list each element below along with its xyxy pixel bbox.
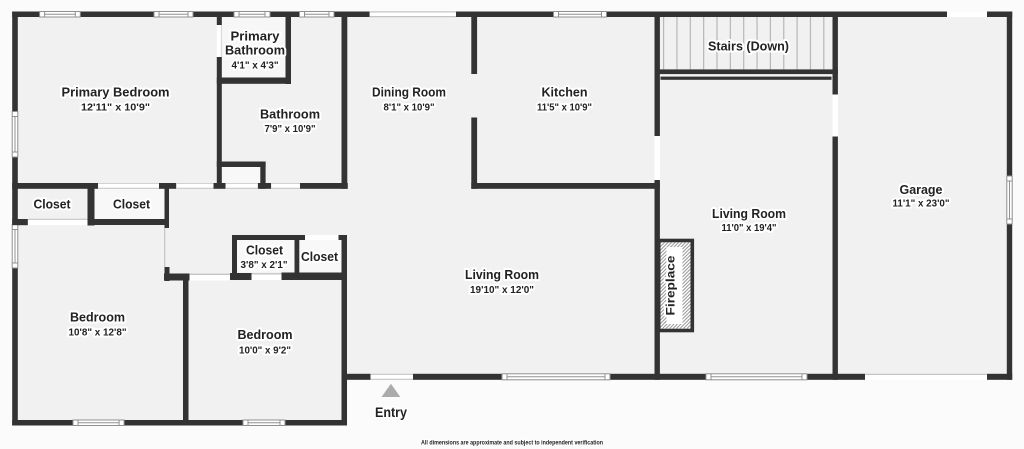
- svg-text:Garage: Garage: [900, 182, 943, 197]
- svg-text:Bathroom: Bathroom: [225, 43, 285, 58]
- svg-text:Closet: Closet: [301, 249, 339, 264]
- svg-text:Bathroom: Bathroom: [260, 106, 320, 121]
- svg-text:Kitchen: Kitchen: [542, 85, 588, 100]
- svg-text:Closet: Closet: [246, 242, 284, 257]
- svg-text:8'1" x 10'9": 8'1" x 10'9": [384, 103, 435, 114]
- svg-text:4'1" x 4'3": 4'1" x 4'3": [232, 61, 279, 72]
- svg-text:10'0" x 9'2": 10'0" x 9'2": [239, 345, 291, 356]
- svg-text:Dining Room: Dining Room: [372, 85, 446, 100]
- svg-text:Bedroom: Bedroom: [70, 309, 125, 324]
- svg-text:Primary: Primary: [231, 28, 281, 43]
- svg-text:Closet: Closet: [113, 197, 151, 212]
- svg-text:12'11" x 10'9": 12'11" x 10'9": [81, 103, 150, 114]
- svg-text:19'10" x 12'0": 19'10" x 12'0": [470, 285, 534, 296]
- svg-text:Living Room: Living Room: [465, 267, 539, 282]
- svg-text:Stairs (Down): Stairs (Down): [708, 39, 789, 54]
- svg-text:11'5" x 10'9": 11'5" x 10'9": [537, 103, 592, 114]
- svg-text:All dimensions are approximate: All dimensions are approximate and subje…: [421, 439, 603, 446]
- svg-text:11'0" x 19'4": 11'0" x 19'4": [722, 223, 777, 234]
- svg-text:Primary Bedroom: Primary Bedroom: [62, 85, 170, 100]
- svg-text:11'1" x 23'0": 11'1" x 23'0": [893, 199, 950, 210]
- svg-text:Fireplace: Fireplace: [664, 255, 678, 315]
- svg-text:Living Room: Living Room: [712, 206, 786, 221]
- svg-text:Entry: Entry: [375, 405, 408, 420]
- svg-text:7'9" x 10'9": 7'9" x 10'9": [265, 124, 316, 135]
- svg-text:3'8" x 2'1": 3'8" x 2'1": [241, 260, 288, 271]
- svg-text:Bedroom: Bedroom: [238, 327, 293, 342]
- svg-text:10'8" x 12'8": 10'8" x 12'8": [69, 328, 127, 339]
- svg-text:Closet: Closet: [34, 197, 72, 212]
